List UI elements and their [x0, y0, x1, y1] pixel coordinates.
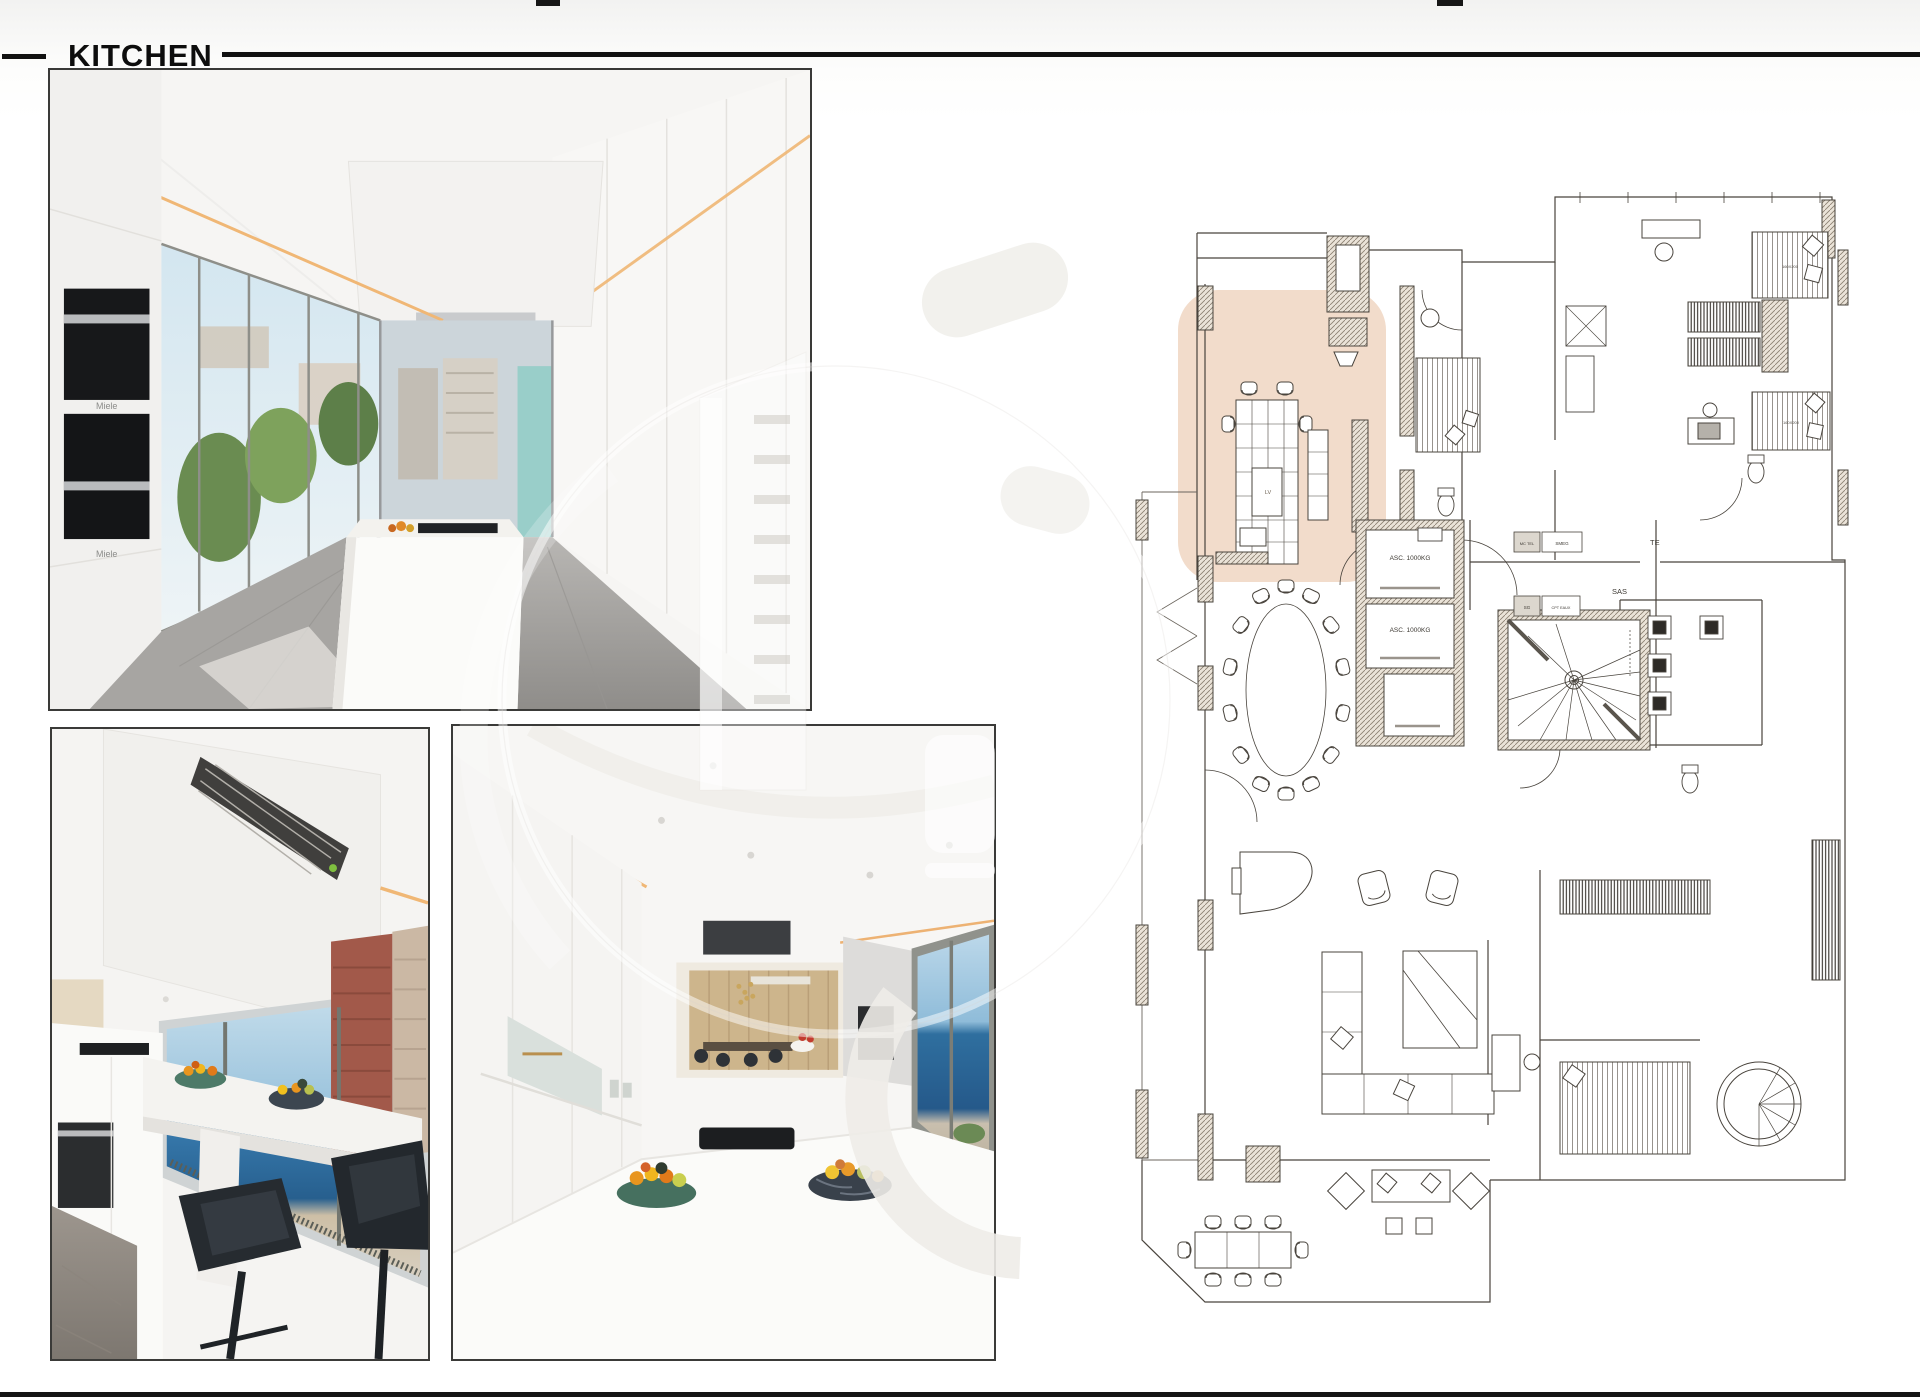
photo-island-wide-illustration	[453, 726, 994, 1359]
appliance-brand-bottom: Miele	[96, 549, 117, 559]
dining-room-doorway	[676, 963, 843, 1078]
grand-piano	[1232, 852, 1312, 914]
rug	[1403, 951, 1477, 1048]
top-edge-mark-right	[1437, 0, 1463, 6]
built-in-oven-bottom	[64, 414, 150, 539]
wall-oven-bottom	[858, 1038, 894, 1060]
photo-kitchen-galley-illustration: Miele Miele	[50, 70, 810, 709]
built-in-oven-top	[64, 289, 150, 400]
spiral-staircase	[1498, 610, 1650, 750]
brochure-page: KITCHEN	[0, 0, 1920, 1397]
photo-kitchen-galley-view: Miele Miele	[48, 68, 812, 711]
kitchen-island-front	[333, 537, 524, 709]
elevator-2-label: ASC. 1000KG	[1390, 627, 1431, 634]
plan-laundry	[1648, 616, 1723, 715]
terrace-lounge	[1328, 1170, 1490, 1234]
induction-hob	[699, 1127, 794, 1149]
spa-circle	[1717, 1062, 1801, 1146]
induction-hob	[418, 523, 498, 533]
ceiling-hood-box	[348, 161, 603, 326]
vestibule-label: SAS	[1612, 587, 1627, 596]
tech-4-label: CPT EAUX	[1552, 606, 1571, 610]
photo-island-stools-illustration	[52, 729, 428, 1359]
dining-table	[703, 1042, 792, 1051]
floor-plan: ASC. 1000KG ASC. 1000KG SAS MC TEL	[1125, 185, 1855, 1315]
elevator-1-label: ASC. 1000KG	[1390, 555, 1431, 562]
tech-1-label: MC TEL	[1520, 541, 1535, 546]
terrace-label: TE	[1650, 538, 1660, 547]
header-rule-right	[222, 52, 1920, 57]
ceiling-hood	[703, 921, 790, 955]
floor-plan-drawing: ASC. 1000KG ASC. 1000KG SAS MC TEL	[1125, 185, 1855, 1315]
plan-dining-oval	[1222, 580, 1350, 800]
photo-kitchen-island-stools	[50, 727, 430, 1361]
tech-2-label: SMEG	[1555, 541, 1569, 546]
bed-size-2: 160X200	[1783, 420, 1800, 425]
dishwasher-label: LV	[1265, 490, 1272, 496]
bed-size-1: 160X200	[1782, 264, 1799, 269]
teal-glass-door	[518, 366, 553, 537]
desk	[1492, 1035, 1520, 1091]
plan-living-room	[1232, 852, 1540, 1114]
header-rule-left	[2, 54, 46, 59]
wall-oven-top	[858, 1006, 894, 1032]
appliance-brand-top: Miele	[96, 401, 117, 411]
photo-kitchen-island-wide	[451, 724, 996, 1361]
induction-hob	[80, 1043, 149, 1055]
top-edge-mark-left	[536, 0, 560, 6]
tech-3-label: SG	[1524, 605, 1531, 610]
armchairs	[1357, 869, 1460, 907]
bottom-edge-bar	[0, 1392, 1920, 1397]
desk-chair	[1524, 1054, 1540, 1070]
